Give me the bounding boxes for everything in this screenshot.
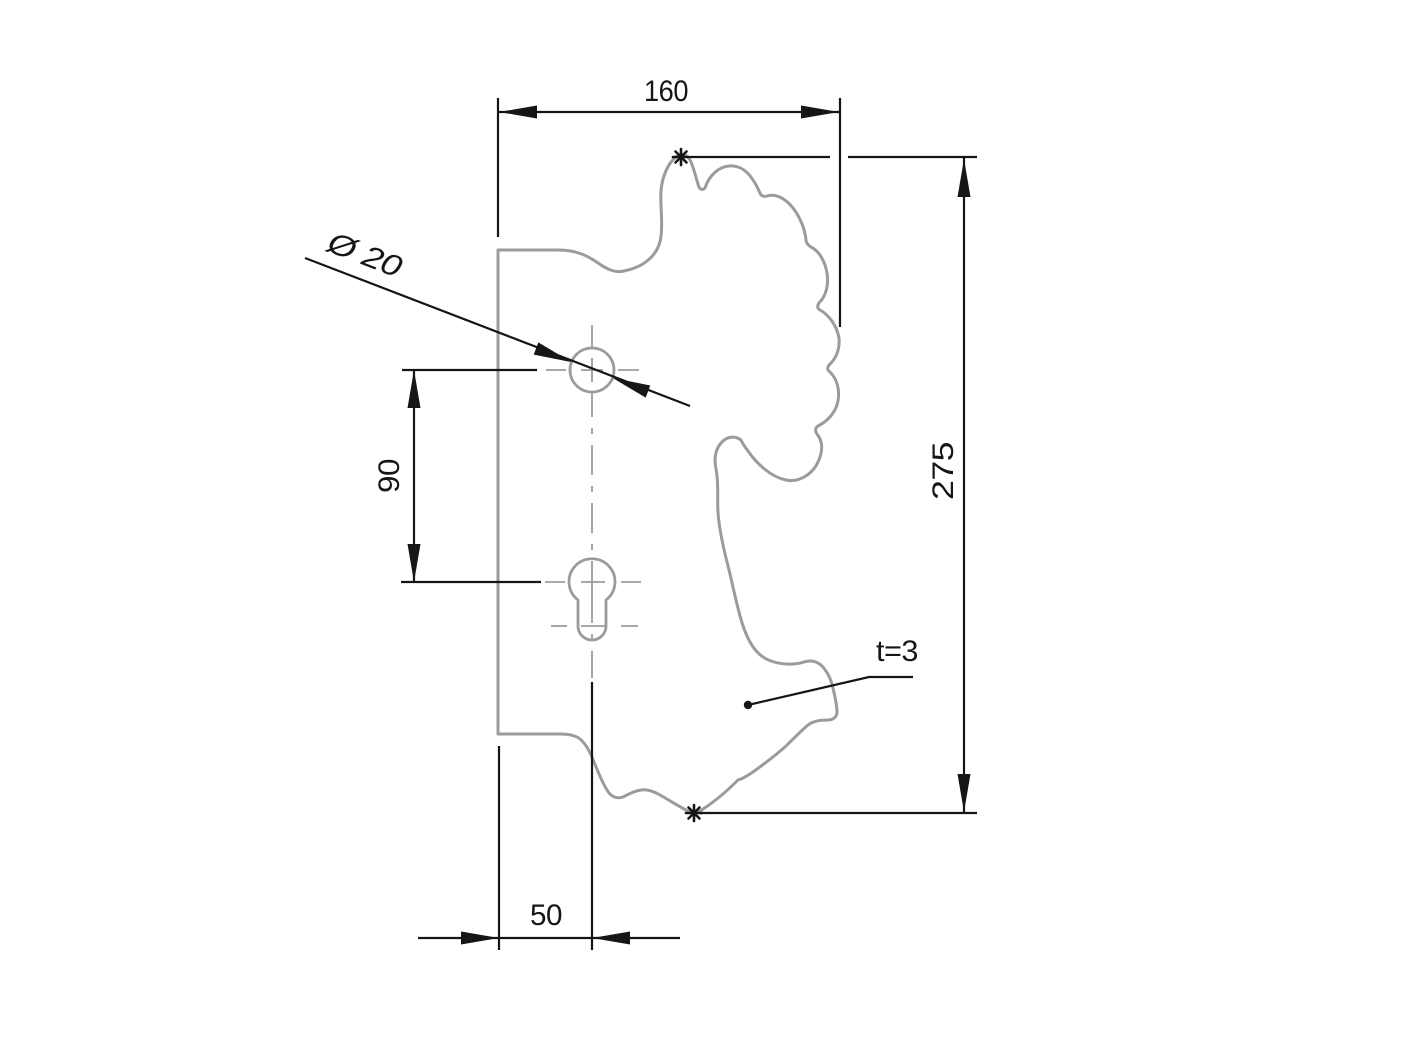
dim-spacing-label: 90 xyxy=(373,459,406,493)
diameter-label: Ø 20 xyxy=(322,226,407,285)
dimension-labels: 160 275 90 50 Ø 20 t=3 xyxy=(322,75,960,932)
arrowhead xyxy=(958,774,971,812)
dim-width-label: 160 xyxy=(644,75,688,108)
arrowhead xyxy=(408,370,421,408)
arrowhead xyxy=(408,544,421,582)
arrowhead xyxy=(613,378,651,398)
dim-height-label: 275 xyxy=(927,442,960,500)
asterisk-marker-top xyxy=(673,149,689,165)
thickness-leader-dot xyxy=(744,701,752,709)
thickness-label: t=3 xyxy=(876,635,918,668)
asterisk-marker-bottom xyxy=(686,805,702,821)
technical-drawing: 160 275 90 50 Ø 20 t=3 xyxy=(0,0,1417,1063)
arrowhead xyxy=(958,159,971,197)
arrowhead xyxy=(534,342,572,362)
part-outline xyxy=(498,155,839,813)
arrowhead xyxy=(499,106,537,119)
arrowhead xyxy=(801,106,839,119)
arrowhead xyxy=(592,932,630,945)
keyhole-centerlines xyxy=(545,582,641,626)
arrowhead xyxy=(461,932,499,945)
drawing-canvas: 160 275 90 50 Ø 20 t=3 xyxy=(0,0,1417,1063)
dim-offset-label: 50 xyxy=(530,899,562,932)
reference-markers xyxy=(673,149,702,821)
dimension-lines xyxy=(305,98,977,950)
part-geometry xyxy=(498,155,839,813)
